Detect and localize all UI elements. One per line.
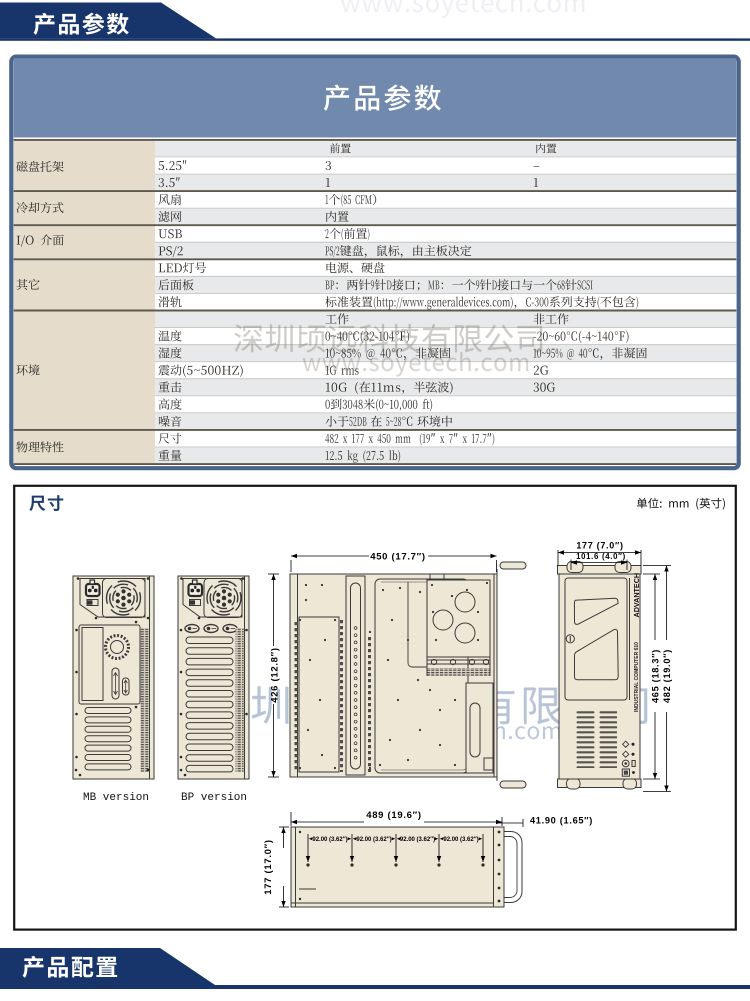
svg-text:92.00 (3.62″): 92.00 (3.62″) [312,837,347,843]
svg-text:BP version: BP version [181,792,247,804]
svg-text:41.90 (1.65″): 41.90 (1.65″) [530,816,593,826]
svg-text:177 (17.0″): 177 (17.0″) [263,839,274,895]
svg-text:MB version: MB version [83,792,149,804]
svg-text:426 (12.8″): 426 (12.8″) [270,647,281,703]
svg-text:101.6 (4.0″): 101.6 (4.0″) [576,552,626,561]
svg-text:465 (18.3″): 465 (18.3″) [651,649,661,703]
svg-text:177 (7.0″): 177 (7.0″) [576,541,623,551]
svg-text:450 (17.7″): 450 (17.7″) [370,552,426,563]
svg-text:92.00 (3.62″): 92.00 (3.62″) [443,837,478,843]
svg-text:489 (19.6″): 489 (19.6″) [366,810,422,821]
svg-text:482 (19.0″): 482 (19.0″) [662,649,672,703]
svg-text:INDUSTRIAL COMPUTER 610: INDUSTRIAL COMPUTER 610 [634,642,640,712]
svg-text:92.00 (3.62″): 92.00 (3.62″) [400,837,435,843]
svg-text:ADVANTECH: ADVANTECH [632,573,641,618]
svg-text:92.00 (3.62″): 92.00 (3.62″) [356,837,391,843]
